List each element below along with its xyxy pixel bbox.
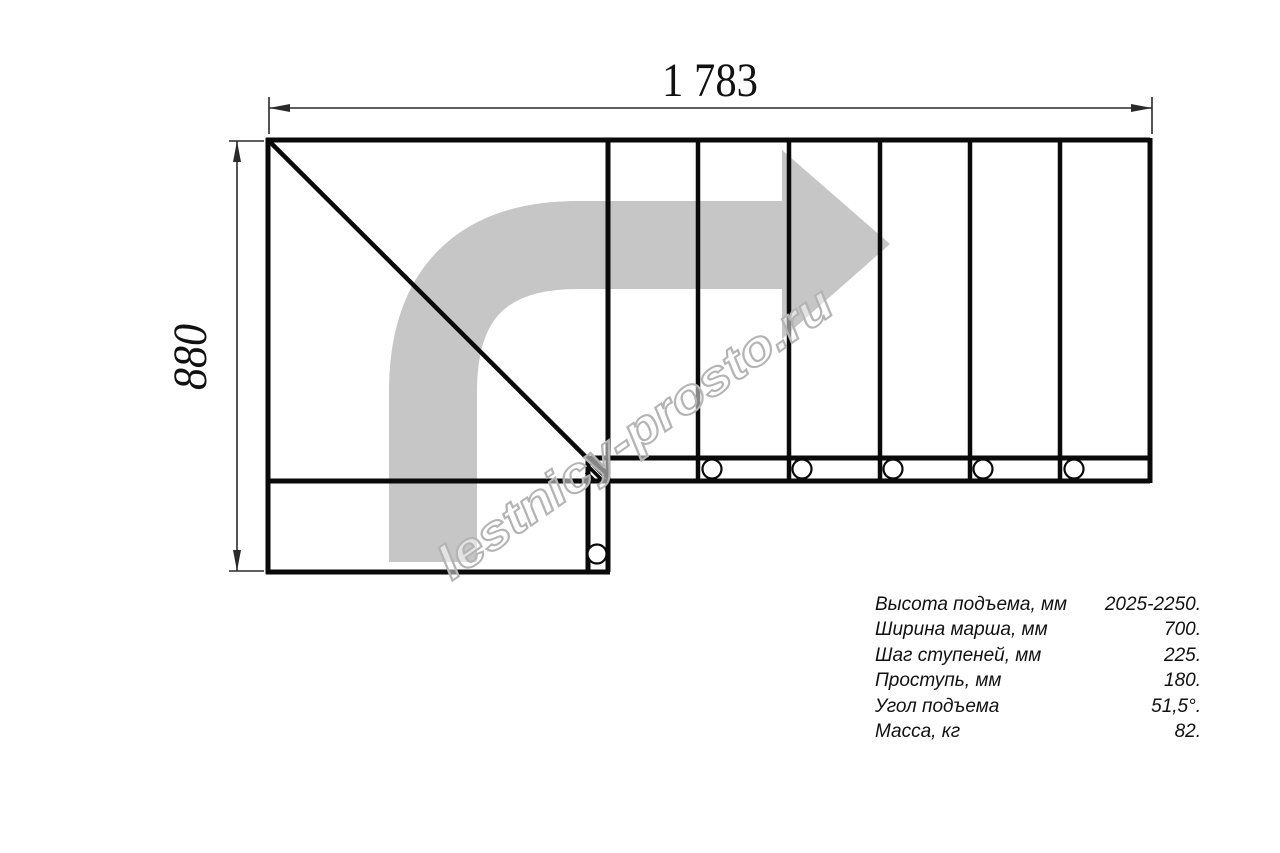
staircase-plan-page: 1 783 880 lestnicy-prosto.ru Высота подъ…	[0, 0, 1280, 853]
spec-row: Проступь, мм 180.	[875, 668, 1201, 693]
bolt-circle	[588, 545, 607, 564]
spec-value: 225.	[1164, 643, 1201, 668]
spec-label: Масса, кг	[875, 719, 960, 744]
spec-row: Высота подъема, мм 2025-2250.	[875, 592, 1201, 617]
spec-value: 2025-2250.	[1105, 592, 1201, 617]
spec-label: Угол подъема	[875, 694, 999, 719]
spec-label: Шаг ступеней, мм	[875, 643, 1041, 668]
bolt-circle	[974, 460, 993, 479]
step-lines	[698, 140, 1060, 481]
spec-value: 82.	[1175, 719, 1201, 744]
bolt-circle	[793, 460, 812, 479]
dimension-arrowhead-bottom	[233, 550, 241, 571]
spec-table: Высота подъема, мм 2025-2250. Ширина мар…	[875, 592, 1201, 744]
spec-value: 51,5°.	[1151, 694, 1201, 719]
spec-value: 700.	[1164, 617, 1201, 642]
dimension-arrowhead-right	[1131, 104, 1152, 112]
spec-label: Высота подъема, мм	[875, 592, 1067, 617]
dimension-height-label: 880	[164, 324, 217, 390]
dimension-height: 880	[164, 141, 264, 571]
dimension-width-label: 1 783	[662, 54, 758, 107]
spec-row: Шаг ступеней, мм 225.	[875, 643, 1201, 668]
bolt-circle	[1065, 460, 1084, 479]
bolt-circles	[588, 460, 1084, 564]
dimension-arrowhead-left	[269, 104, 290, 112]
spec-row: Ширина марша, мм 700.	[875, 617, 1201, 642]
dimension-arrowhead-top	[233, 141, 241, 162]
bolt-circle	[703, 460, 722, 479]
bolt-circle	[884, 460, 903, 479]
spec-value: 180.	[1164, 668, 1201, 693]
dimension-width: 1 783	[269, 54, 1152, 134]
spec-label: Проступь, мм	[875, 668, 1001, 693]
spec-row: Масса, кг 82.	[875, 719, 1201, 744]
spec-label: Ширина марша, мм	[875, 617, 1048, 642]
spec-row: Угол подъема 51,5°.	[875, 694, 1201, 719]
